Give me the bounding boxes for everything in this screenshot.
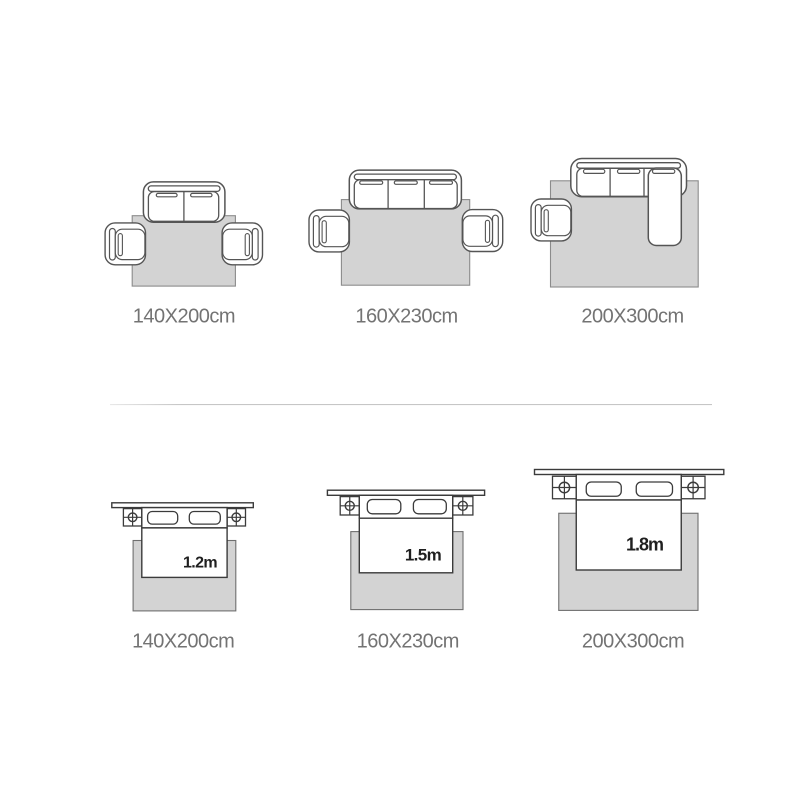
svg-text:1.2m: 1.2m bbox=[183, 555, 217, 572]
svg-text:1.8m: 1.8m bbox=[626, 535, 663, 555]
svg-text:160X230cm: 160X230cm bbox=[355, 306, 457, 328]
svg-text:160X230cm: 160X230cm bbox=[357, 631, 459, 653]
svg-text:1.5m: 1.5m bbox=[405, 546, 442, 565]
svg-text:140X200cm: 140X200cm bbox=[133, 306, 235, 328]
svg-text:200X300cm: 200X300cm bbox=[582, 631, 684, 653]
svg-text:140X200cm: 140X200cm bbox=[132, 631, 234, 653]
svg-text:200X300cm: 200X300cm bbox=[581, 306, 683, 328]
